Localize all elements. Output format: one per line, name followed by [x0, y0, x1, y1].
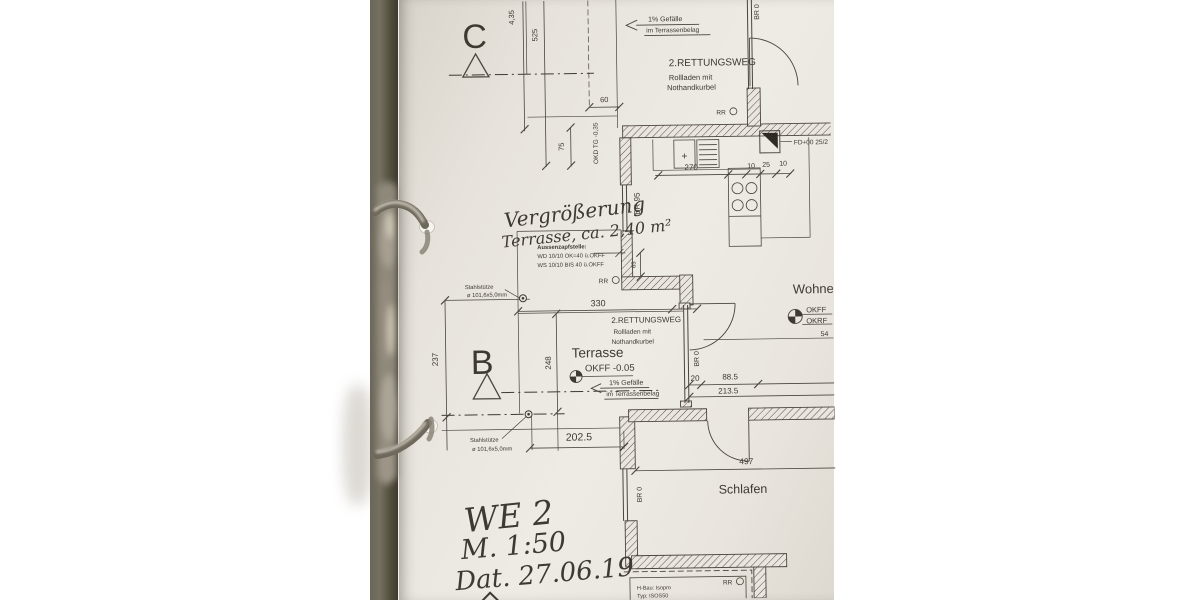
screenshot-root: { "colors": { "paper": "#eae6df", "line"…: [0, 0, 1200, 600]
binder-rings-svg: [0, 0, 1200, 600]
binder-mechanism: [377, 182, 398, 485]
